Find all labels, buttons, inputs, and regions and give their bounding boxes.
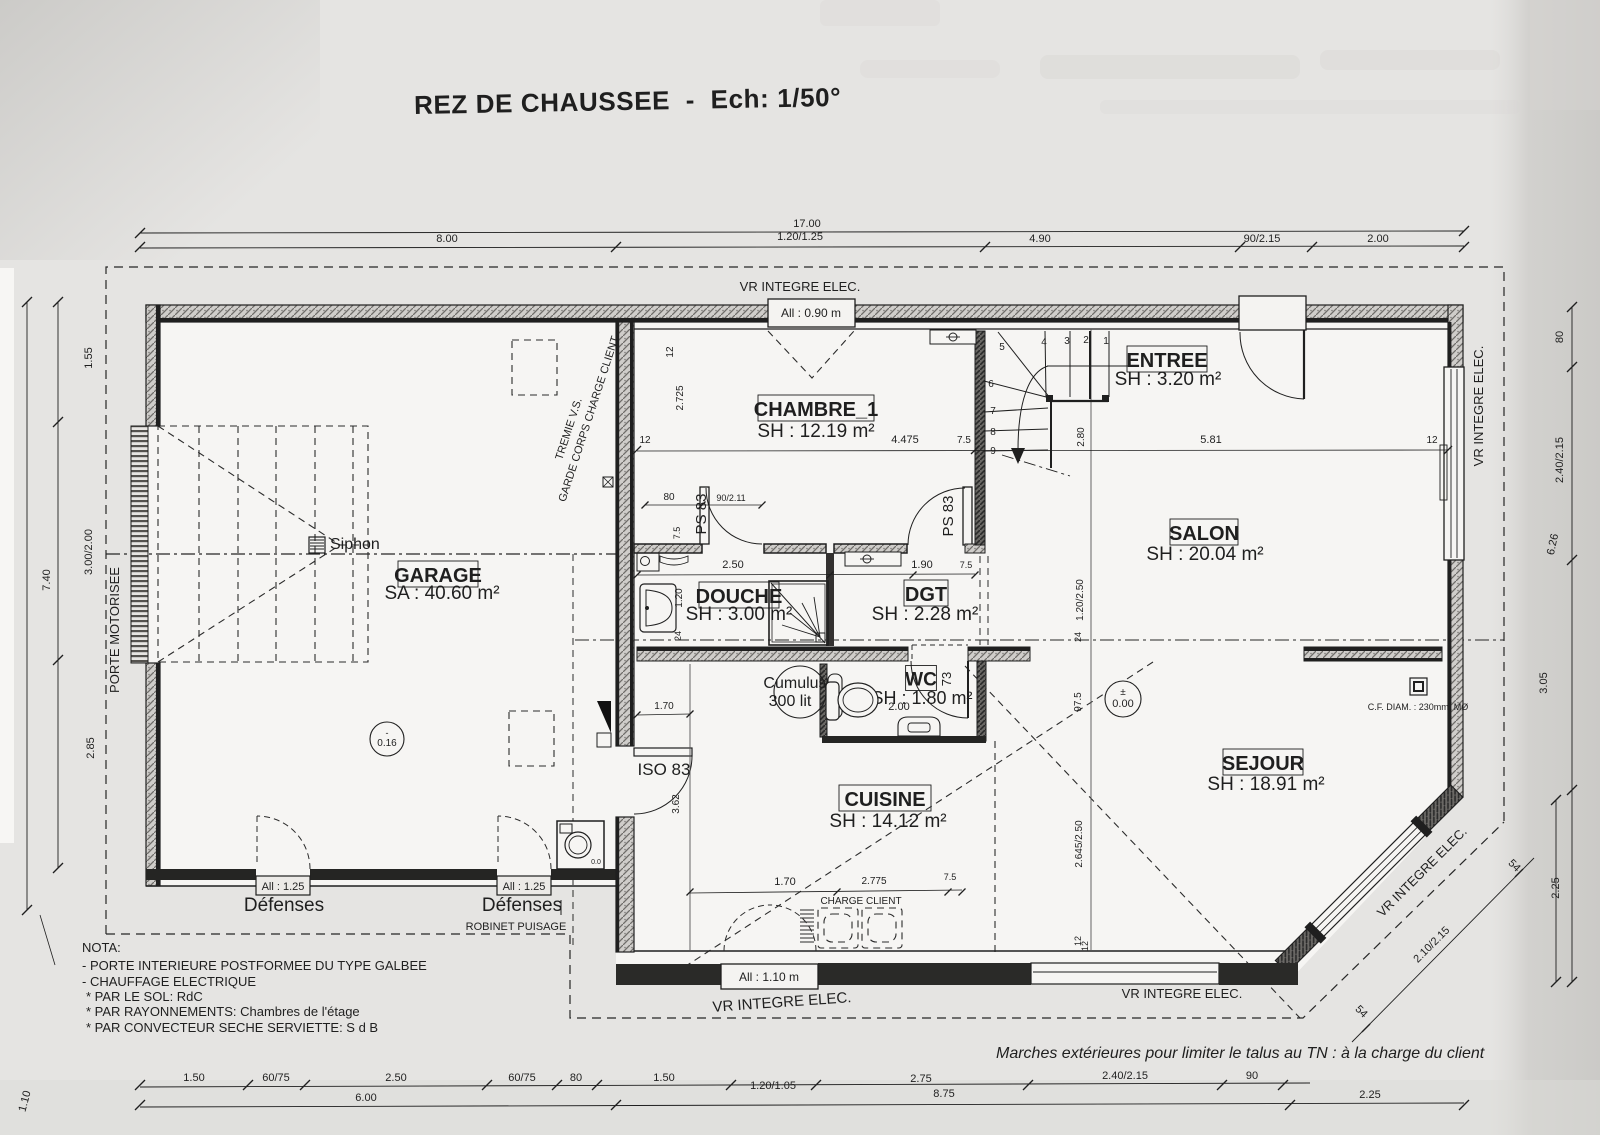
svg-text:80: 80	[1554, 331, 1566, 343]
svg-text:SH : 1.80 m²: SH : 1.80 m²	[871, 688, 972, 708]
svg-text:2.775: 2.775	[861, 876, 886, 887]
svg-text:9: 9	[990, 446, 996, 457]
svg-text:12: 12	[665, 346, 676, 358]
svg-text:2.85: 2.85	[85, 737, 97, 758]
svg-text:2.00: 2.00	[1367, 233, 1388, 245]
svg-text:2.00: 2.00	[888, 701, 909, 713]
svg-text:2.75: 2.75	[910, 1073, 931, 1085]
svg-text:2.725: 2.725	[675, 385, 686, 410]
svg-text:1.70: 1.70	[774, 876, 795, 888]
svg-text:90/2.11: 90/2.11	[716, 493, 745, 503]
svg-text:ISO 83: ISO 83	[638, 760, 691, 779]
svg-text:Défenses: Défenses	[244, 895, 324, 916]
svg-text:3.05: 3.05	[1538, 672, 1550, 693]
svg-text:0.00: 0.00	[1112, 698, 1133, 710]
svg-text:-: -	[386, 728, 389, 738]
svg-text:PS 83: PS 83	[693, 494, 710, 535]
svg-text:Siphon: Siphon	[330, 536, 380, 553]
svg-text:All : 0.90 m: All : 0.90 m	[781, 306, 841, 320]
svg-text:90: 90	[1246, 1070, 1258, 1082]
svg-text:- CHAUFFAGE ELECTRIQUE: - CHAUFFAGE ELECTRIQUE	[82, 974, 256, 989]
svg-text:VR INTEGRE ELEC.: VR INTEGRE ELEC.	[740, 279, 861, 294]
svg-text:1.50: 1.50	[183, 1072, 204, 1084]
svg-text:All : 1.25: All : 1.25	[262, 881, 305, 893]
svg-text:SA : 40.60 m²: SA : 40.60 m²	[384, 583, 499, 604]
svg-text:7.40: 7.40	[41, 569, 53, 590]
svg-text:VR INTEGRE ELEC.: VR INTEGRE ELEC.	[1471, 346, 1486, 467]
svg-text:SEJOUR: SEJOUR	[1222, 753, 1305, 775]
svg-text:SH : 2.28 m²: SH : 2.28 m²	[872, 604, 979, 625]
svg-text:7.5: 7.5	[960, 560, 973, 570]
svg-text:Cumulus: Cumulus	[763, 675, 826, 692]
svg-text:1: 1	[1103, 336, 1109, 347]
svg-text:300 lit: 300 lit	[769, 693, 812, 710]
svg-text:VR INTEGRE ELEC.: VR INTEGRE ELEC.	[1122, 986, 1243, 1001]
svg-text:2.80: 2.80	[1076, 427, 1087, 447]
svg-text:SH : 14.12 m²: SH : 14.12 m²	[829, 811, 946, 832]
svg-text:4.90: 4.90	[1029, 233, 1050, 245]
svg-text:4.475: 4.475	[891, 434, 919, 446]
svg-text:- PORTE INTERIEURE POSTFORMEE: - PORTE INTERIEURE POSTFORMEE DU TYPE GA…	[82, 958, 427, 973]
svg-text:8.75: 8.75	[933, 1088, 954, 1100]
svg-text:2.40/2.15: 2.40/2.15	[1554, 437, 1566, 483]
svg-text:1.50: 1.50	[653, 1072, 674, 1084]
svg-text:6.00: 6.00	[355, 1092, 376, 1104]
svg-text:7.5: 7.5	[957, 435, 971, 446]
svg-text:2.40/2.15: 2.40/2.15	[1102, 1070, 1148, 1082]
svg-text:PS 83: PS 83	[940, 496, 957, 537]
svg-text:±: ±	[1120, 687, 1126, 698]
svg-text:* PAR LE SOL: RdC: * PAR LE SOL: RdC	[86, 989, 203, 1004]
svg-text:DGT: DGT	[905, 584, 947, 606]
svg-text:60/75: 60/75	[508, 1072, 536, 1084]
svg-text:7.5: 7.5	[944, 872, 957, 882]
svg-text:97.5: 97.5	[1073, 692, 1084, 712]
svg-text:SH : 20.04 m²: SH : 20.04 m²	[1146, 544, 1263, 565]
svg-text:4: 4	[1041, 337, 1047, 348]
svg-text:* PAR CONVECTEUR SECHE SERVIET: * PAR CONVECTEUR SECHE SERVIETTE: S d B	[86, 1020, 378, 1035]
svg-text:1.90: 1.90	[911, 559, 932, 571]
svg-text:SH : 12.19 m²: SH : 12.19 m²	[757, 421, 874, 442]
svg-text:2: 2	[1083, 335, 1089, 346]
svg-text:17.00: 17.00	[793, 218, 821, 230]
svg-text:12: 12	[1080, 941, 1090, 951]
svg-text:CUISINE: CUISINE	[844, 789, 925, 811]
svg-text:1.20/1.05: 1.20/1.05	[750, 1080, 796, 1092]
svg-text:All : 1.25: All : 1.25	[503, 881, 546, 893]
svg-text:24: 24	[673, 631, 683, 641]
svg-text:5: 5	[999, 342, 1005, 353]
svg-text:12: 12	[1426, 435, 1438, 446]
svg-text:Marches extérieures pour limit: Marches extérieures pour limiter le talu…	[996, 1045, 1485, 1062]
svg-text:3: 3	[1064, 336, 1070, 347]
svg-text:ROBINET PUISAGE: ROBINET PUISAGE	[466, 921, 567, 933]
svg-text:NOTA:: NOTA:	[82, 940, 121, 955]
svg-text:12: 12	[639, 435, 651, 446]
svg-text:80: 80	[663, 492, 675, 503]
svg-text:CHAMBRE_1: CHAMBRE_1	[754, 399, 878, 421]
svg-text:2.645/2.50: 2.645/2.50	[1074, 820, 1085, 868]
svg-text:C.F. DIAM. : 230mm MØ: C.F. DIAM. : 230mm MØ	[1368, 702, 1469, 712]
svg-text:SH : 3.00 m²: SH : 3.00 m²	[686, 604, 793, 625]
svg-text:SH : 3.20 m²: SH : 3.20 m²	[1115, 369, 1222, 390]
svg-text:7: 7	[990, 406, 996, 417]
svg-text:90/2.15: 90/2.15	[1244, 233, 1281, 245]
svg-text:6: 6	[988, 379, 994, 390]
svg-text:1.20/2.50: 1.20/2.50	[1075, 579, 1086, 621]
svg-text:73: 73	[939, 672, 954, 686]
svg-text:Défenses: Défenses	[482, 895, 562, 916]
svg-text:3.62: 3.62	[671, 794, 682, 814]
svg-text:7.5: 7.5	[672, 527, 682, 540]
svg-text:2.50: 2.50	[385, 1072, 406, 1084]
svg-text:0.16: 0.16	[377, 738, 397, 749]
svg-text:1.20: 1.20	[674, 588, 685, 608]
svg-text:24: 24	[1073, 632, 1083, 642]
svg-text:SH : 18.91 m²: SH : 18.91 m²	[1207, 774, 1324, 795]
svg-text:SALON: SALON	[1169, 523, 1239, 545]
svg-text:60/75: 60/75	[262, 1072, 290, 1084]
svg-text:3.00/2.00: 3.00/2.00	[83, 529, 95, 575]
svg-text:CHARGE CLIENT: CHARGE CLIENT	[820, 896, 901, 907]
svg-text:* PAR RAYONNEMENTS: Chambres d: * PAR RAYONNEMENTS: Chambres de l'étage	[86, 1004, 360, 1019]
svg-text:8.00: 8.00	[436, 233, 457, 245]
svg-text:All : 1.10 m: All : 1.10 m	[739, 970, 799, 984]
svg-text:8: 8	[990, 427, 996, 438]
svg-text:1.20/1.25: 1.20/1.25	[777, 231, 823, 243]
svg-text:2.50: 2.50	[722, 559, 743, 571]
svg-text:1.70: 1.70	[654, 701, 674, 712]
svg-text:0.0: 0.0	[591, 859, 601, 866]
svg-text:1.55: 1.55	[83, 347, 95, 368]
svg-text:80: 80	[570, 1072, 582, 1084]
svg-text:5.81: 5.81	[1200, 434, 1221, 446]
svg-text:PORTE MOTORISEE: PORTE MOTORISEE	[107, 567, 122, 693]
svg-text:2.25: 2.25	[1359, 1089, 1380, 1101]
